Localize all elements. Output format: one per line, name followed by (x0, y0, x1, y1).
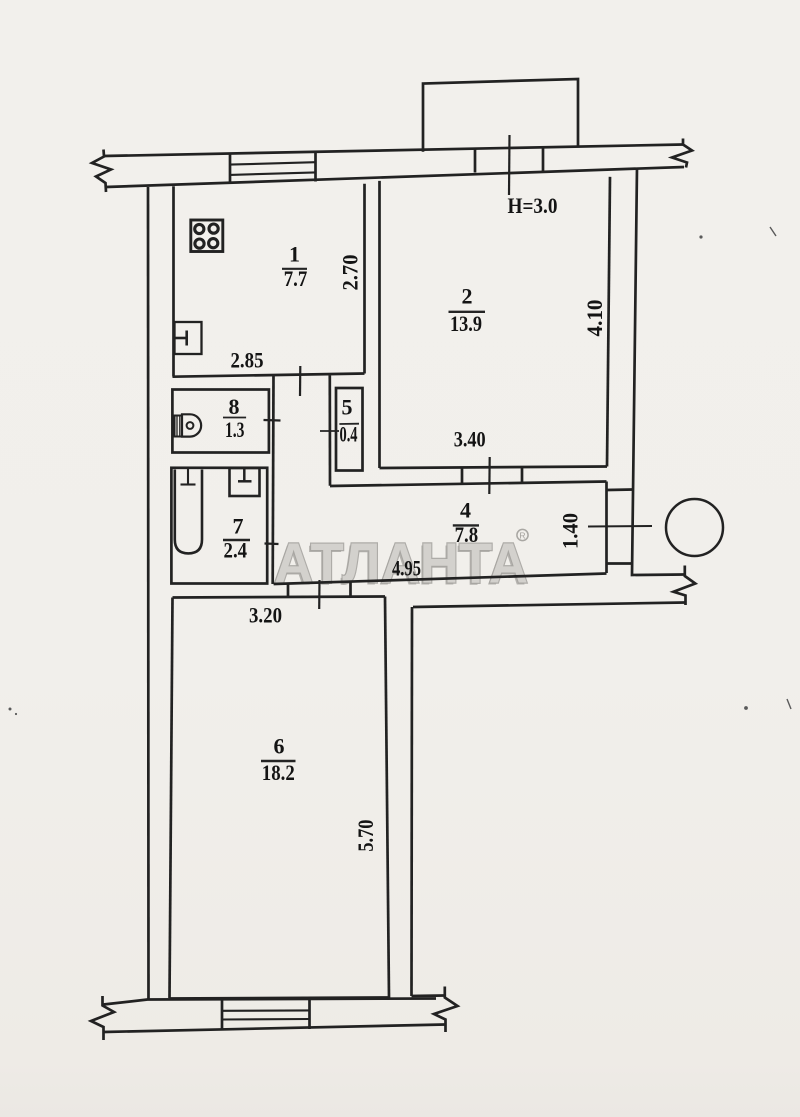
svg-text:R: R (519, 531, 525, 541)
svg-text:5: 5 (342, 395, 353, 420)
svg-text:1: 1 (289, 242, 300, 267)
svg-text:18.2: 18.2 (262, 760, 295, 785)
svg-text:13.9: 13.9 (450, 311, 482, 336)
svg-text:3.20: 3.20 (249, 602, 282, 627)
svg-text:7.7: 7.7 (284, 266, 308, 291)
svg-text:8: 8 (229, 394, 240, 419)
svg-text:0.4: 0.4 (340, 422, 358, 447)
svg-text:1.3: 1.3 (225, 417, 245, 442)
svg-text:1.40: 1.40 (558, 513, 583, 549)
svg-text:6: 6 (274, 734, 285, 759)
svg-text:7.8: 7.8 (455, 522, 479, 547)
svg-text:2.85: 2.85 (231, 348, 264, 373)
svg-text:H=3.0: H=3.0 (508, 193, 558, 218)
svg-text:2.4: 2.4 (224, 538, 248, 563)
svg-text:4.10: 4.10 (582, 300, 607, 337)
svg-text:2: 2 (462, 284, 473, 309)
svg-text:4.95: 4.95 (392, 556, 421, 581)
svg-text:4: 4 (460, 498, 471, 523)
svg-text:3.40: 3.40 (454, 427, 486, 452)
svg-text:7: 7 (233, 514, 244, 539)
svg-text:2.70: 2.70 (338, 255, 363, 291)
svg-text:5.70: 5.70 (353, 820, 378, 852)
